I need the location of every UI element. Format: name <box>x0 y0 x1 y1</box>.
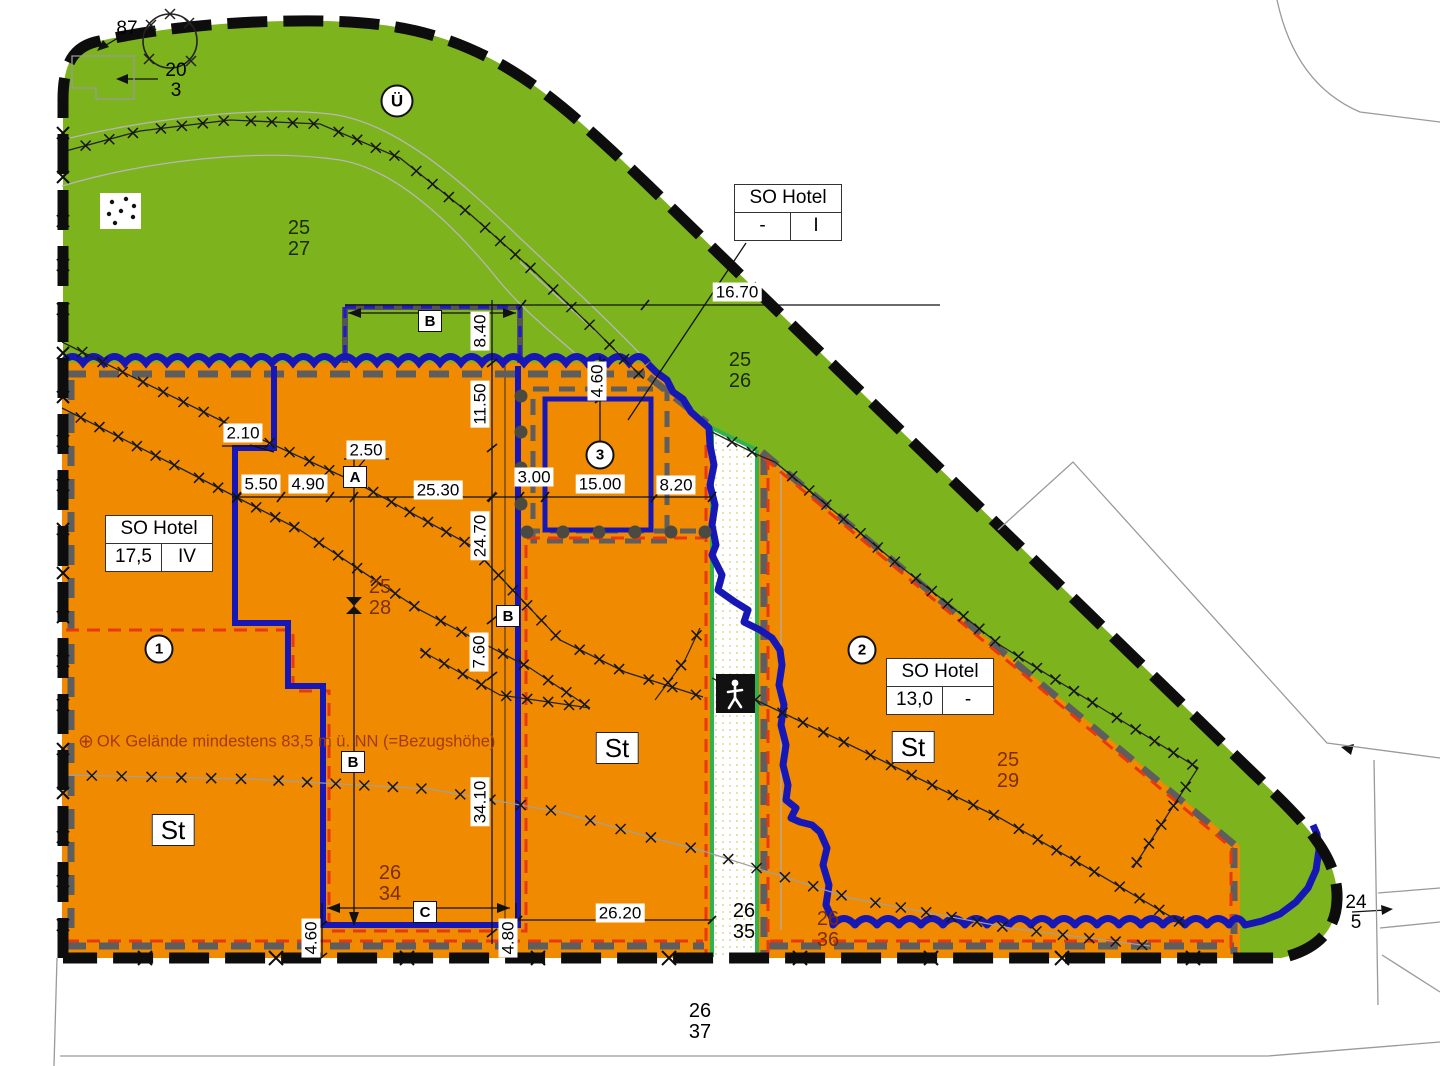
dim-label: 24.70 <box>471 512 490 561</box>
parcel-line: 87 <box>116 19 137 39</box>
section-marker-b-mid: B <box>496 605 520 627</box>
area-number-1: 1 <box>145 635 174 664</box>
dim-label: 7.60 <box>470 632 489 671</box>
reference-height-note: ⊕ OK Gelände mindestens 83,5 m ü. NN (=B… <box>78 733 495 752</box>
landuse-title: SO Hotel <box>887 659 993 687</box>
dim-label: 2.50 <box>346 441 385 460</box>
parcel-line: 26 <box>733 901 755 922</box>
dim-label: 26.20 <box>596 904 645 923</box>
parcel-line: 25 <box>288 218 310 239</box>
parcel-20-3: 20 3 <box>165 61 186 101</box>
parcel-line: 29 <box>997 771 1019 792</box>
dim-label: 4.60 <box>302 918 321 957</box>
parcel-line: 25 <box>369 577 391 598</box>
parcel-line: 27 <box>288 239 310 260</box>
landuse-value-right: IV <box>162 544 212 571</box>
reference-point-icon: ⊕ <box>78 734 94 750</box>
dim-label: 2.10 <box>223 424 262 443</box>
parcel-line: 37 <box>689 1022 711 1043</box>
parcel-line: 28 <box>369 598 391 619</box>
parking-label-st-east: St <box>892 731 935 763</box>
ue-symbol: Ü <box>381 85 414 118</box>
parcel-line: 26 <box>379 863 401 884</box>
parcel-line: 36 <box>817 930 839 951</box>
parcel-26-37: 26 37 <box>689 1001 711 1043</box>
dim-label: 34.10 <box>471 778 490 827</box>
section-marker-b-low: B <box>341 751 365 773</box>
area-number-2: 2 <box>848 636 877 665</box>
dim-label: 25.30 <box>414 481 463 500</box>
section-marker-c: C <box>413 901 437 923</box>
dim-label: 4.60 <box>588 361 607 400</box>
dim-label: 5.50 <box>241 475 280 494</box>
landuse-table-hotel-west: SO Hotel 17,5 IV <box>105 515 213 572</box>
dim-label: 15.00 <box>576 475 625 494</box>
parcel-line: 26 <box>689 1001 711 1022</box>
dim-label: 4.90 <box>288 475 327 494</box>
dim-label: 8.40 <box>471 311 490 350</box>
parcel-26-35: 26 35 <box>733 901 755 943</box>
dim-label: 8.20 <box>656 476 695 495</box>
landuse-table-hotel-east: SO Hotel 13,0 - <box>886 658 994 715</box>
parking-label-st-west: St <box>152 814 195 846</box>
parcel-25-26: 25 26 <box>729 350 751 392</box>
parcel-25-28: 25 28 <box>369 577 391 619</box>
landuse-title: SO Hotel <box>106 516 212 544</box>
parcel-25-29: 25 29 <box>997 750 1019 792</box>
parcel-25-27: 25 27 <box>288 218 310 260</box>
landuse-value-left: 13,0 <box>887 687 943 714</box>
parcel-87: 87 <box>116 19 137 39</box>
section-marker-a: A <box>343 466 367 488</box>
section-marker-b-top: B <box>418 310 442 332</box>
note-text: OK Gelände mindestens 83,5 m ü. NN (=Bez… <box>97 733 496 752</box>
pedestrian-path-sign <box>716 674 755 713</box>
parcel-24-5: 24 5 <box>1345 893 1366 933</box>
parcel-line: 3 <box>171 81 182 101</box>
landuse-value-left: 17,5 <box>106 544 162 571</box>
parcel-26-36: 26 36 <box>817 909 839 951</box>
parcel-line: 26 <box>729 371 751 392</box>
landuse-table-hotel-top: SO Hotel - I <box>734 184 842 241</box>
parcel-line: 26 <box>817 909 839 930</box>
parcel-line: 35 <box>733 922 755 943</box>
parcel-line: 34 <box>379 884 401 905</box>
parcel-line: 25 <box>997 750 1019 771</box>
dim-label: 11.50 <box>471 380 490 427</box>
dim-label: 16.70 <box>713 283 762 302</box>
landuse-value-right: - <box>943 687 993 714</box>
parcel-line: 20 <box>165 61 186 81</box>
landuse-value-right: I <box>791 213 841 240</box>
dim-label: 4.80 <box>499 918 518 957</box>
parcel-line: 25 <box>729 350 751 371</box>
parcel-line: 24 <box>1345 893 1366 913</box>
landuse-value-left: - <box>735 213 791 240</box>
dim-label: 3.00 <box>514 468 553 487</box>
landuse-title: SO Hotel <box>735 185 841 213</box>
parking-label-st-mid: St <box>596 732 639 764</box>
area-number-3: 3 <box>586 441 615 470</box>
parcel-line: 5 <box>1351 913 1362 933</box>
dotted-area-symbol <box>100 193 141 229</box>
parcel-26-34: 26 34 <box>379 863 401 905</box>
plan-drawing <box>0 0 1440 1066</box>
zoning-site-plan: 16.70 8.40 11.50 4.60 2.10 2.50 5.50 4.9… <box>0 0 1440 1066</box>
